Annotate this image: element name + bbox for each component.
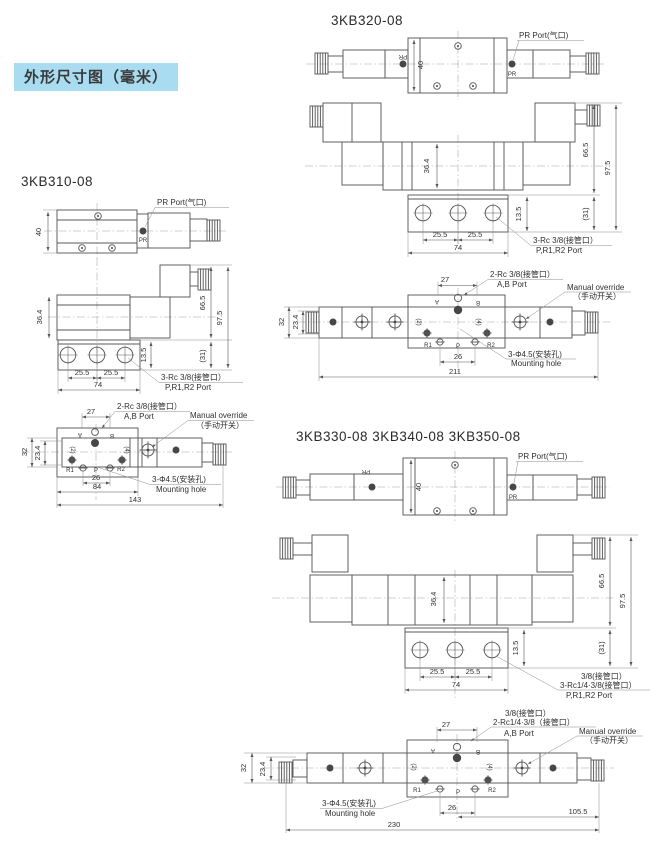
manual-override-symbol: [512, 314, 529, 331]
dim-31: (31): [597, 630, 610, 666]
dim-27: 27: [82, 407, 110, 417]
port-a-label: A: [431, 747, 435, 753]
dim-text: 26: [448, 803, 456, 812]
port-label: A,B Port: [124, 412, 155, 421]
dim-31: (31): [581, 197, 594, 230]
dim-40: 40: [34, 212, 48, 251]
port-p-label: P: [456, 790, 460, 796]
port-symbol: [470, 83, 477, 90]
dim-31: (31): [198, 342, 211, 368]
pr-port-callout: PR Port(气口): [513, 30, 584, 60]
dim-97-5: 97.5: [618, 537, 631, 666]
s320-bottom-view: A B (2) (4) R1 P R2 27 2-Rc 3/8(接管口） A,B…: [277, 269, 631, 381]
dim-32: 32: [20, 438, 32, 467]
port-label: P,R1,R2 Port: [165, 383, 212, 392]
pr-port-callout: PR Port(气口): [145, 197, 229, 227]
port-label: A,B Port: [504, 729, 535, 738]
dim-66-5: 66.5: [597, 537, 610, 626]
port-symbol: [357, 760, 374, 777]
port-label: 3/8(接管口）: [581, 671, 627, 681]
dim-text: 13.5: [139, 348, 148, 363]
pipe-port-symbol: [483, 641, 502, 660]
dim-text: 27: [442, 720, 450, 729]
mounting-label: Mounting hole: [511, 359, 562, 368]
port-p-label: P: [456, 344, 460, 350]
port-label: 2-Rc 3/8(接管口）: [117, 401, 182, 411]
pr-port-label: PR Port(气口): [518, 451, 568, 461]
port-r2-label: R2: [488, 788, 496, 794]
port-label: 3-Rc 3/8(接管口）: [161, 372, 226, 382]
dim-74: 74: [408, 243, 508, 253]
pipe-port-symbol: [59, 346, 78, 365]
mounting-hole-callout: 3-Φ4.5(安装孔) Mounting hole: [460, 329, 576, 368]
dim-13-5: 13.5: [511, 630, 524, 666]
s330-top-view: 40 PR PR PR Port(气口): [276, 451, 610, 522]
pipe-port-symbol: [414, 204, 433, 223]
pr-label: PR: [508, 72, 517, 78]
dim-40: 40: [411, 460, 423, 513]
port-a-symbol: [453, 754, 461, 762]
mounting-label: 3-Φ4.5(安装孔): [152, 474, 206, 484]
port-symbol: [109, 245, 116, 252]
dim-text: 32: [277, 318, 286, 326]
dim-text: 13.5: [511, 641, 520, 656]
drawing-page: 外形尺寸图（毫米） 3KB320-08 3KB310-08 3KB330-08 …: [0, 0, 667, 854]
pr-port-symbol: [140, 228, 147, 235]
dim-text: 74: [454, 243, 462, 252]
pipe-port-symbol: [116, 346, 135, 365]
port-symbol: [354, 314, 371, 331]
mounting-label: 3-Φ4.5(安装孔): [508, 349, 562, 359]
dim-text: 23.4: [33, 446, 42, 461]
port-symbol: [173, 447, 180, 454]
port-label: P,R1,R2 Port: [566, 691, 613, 700]
port-4-label: (4): [486, 763, 492, 770]
mounting-hole-symbol: [435, 339, 444, 345]
port-a-symbol: [454, 306, 462, 314]
manual-override-label: （手动开关）: [196, 420, 244, 430]
dim-text: 23.4: [291, 315, 300, 330]
pr-label: PR: [398, 53, 407, 59]
port-a-label: A: [78, 431, 82, 437]
manual-override-symbol: [514, 760, 531, 777]
port-symbol: [67, 455, 76, 464]
port-r1-label: R1: [66, 468, 74, 474]
port-label: P,R1,R2 Port: [536, 246, 583, 255]
port-label: 2-Rc 3/8(接管口）: [490, 269, 555, 279]
port-symbol: [117, 455, 126, 464]
prr-port-callout: 3-Rc 3/8(接管口） P,R1,R2 Port: [496, 217, 612, 255]
dim-text: 74: [94, 380, 102, 389]
manual-override-label: （手动开关）: [573, 291, 621, 301]
mounting-hole-callout: 3-Φ4.5(安装孔) Mounting hole: [320, 791, 437, 818]
dim-text: 25.5: [466, 667, 481, 676]
dim-23-4: 23.4: [33, 441, 45, 465]
pr-port-callout: PR Port(气口): [514, 451, 583, 483]
pr-port-label: PR Port(气口): [519, 30, 569, 40]
port-4-label: (4): [123, 446, 129, 453]
dim-25-5-pair: 25.5 25.5: [420, 667, 492, 677]
dim-text: 23.4: [258, 762, 267, 777]
pipe-port-symbol: [446, 641, 465, 660]
dim-32: 32: [277, 307, 289, 338]
s310-front-view: 36.4 13.5 66.5 (31) 97.5 25.5: [35, 258, 243, 394]
dim-text: 27: [87, 407, 95, 416]
dim-text: 40: [416, 61, 425, 69]
dim-text: 97.5: [603, 161, 612, 176]
dim-text: 13.5: [514, 207, 523, 222]
dim-74: 74: [405, 680, 508, 690]
ab-port-callout: 2-Rc 3/8(接管口） A,B Port: [102, 401, 190, 428]
dim-13-5: 13.5: [514, 197, 527, 231]
mounting-label: Mounting hole: [325, 809, 376, 818]
dim-66-5: 66.5: [198, 267, 211, 338]
dim-text: 27: [441, 275, 449, 284]
port-symbol: [434, 83, 441, 90]
dim-text: (31): [581, 207, 590, 221]
s310-top-view: 40 PR PR Port(气口): [34, 197, 229, 261]
dim-text: 66.5: [597, 574, 606, 589]
port-a-symbol: [91, 439, 99, 447]
mounting-label: Mounting hole: [156, 485, 207, 494]
dim-text: 105.5: [569, 807, 588, 816]
mounting-hole-symbol: [470, 339, 479, 345]
dim-text: 32: [20, 448, 29, 456]
dim-74: 74: [58, 380, 140, 390]
manual-override-label: Manual override: [579, 727, 637, 736]
dimension-drawing: 40 PR PR PR Port(气口): [0, 0, 667, 854]
dim-text: 143: [129, 495, 142, 504]
port-symbol: [327, 765, 334, 772]
dim-143: 143: [57, 495, 223, 505]
dim-text: (31): [597, 641, 606, 655]
dim-text: 36.4: [429, 592, 438, 607]
pr-port-symbol: [369, 484, 376, 491]
dim-text: 40: [414, 483, 423, 491]
port-symbol: [330, 319, 337, 326]
dim-32: 32: [239, 753, 252, 783]
dim-text: 211: [449, 367, 461, 376]
port-r2-label: R2: [487, 343, 495, 349]
dim-text: 25.5: [468, 230, 483, 239]
dim-105-5: 105.5: [458, 807, 599, 817]
pipe-port-symbol: [449, 204, 468, 223]
dim-text: 66.5: [198, 296, 207, 311]
port-2-label: (2): [415, 318, 421, 325]
dim-97-5: 97.5: [215, 267, 228, 368]
pr-label: PR: [361, 468, 370, 474]
dim-40: 40: [414, 40, 425, 91]
mounting-hole-symbol: [470, 786, 479, 792]
dim-text: (31): [198, 349, 207, 363]
port-symbol: [550, 765, 557, 772]
dim-text: 66.5: [581, 143, 590, 158]
dim-23-4: 23.4: [258, 757, 271, 780]
port-label: A,B Port: [497, 280, 528, 289]
dim-84: 84: [57, 482, 138, 492]
dim-97-5: 97.5: [603, 105, 616, 230]
dim-26: 26: [440, 352, 475, 362]
dim-27: 27: [437, 720, 477, 730]
port-symbol: [422, 328, 431, 337]
dim-23-4: 23.4: [291, 311, 303, 334]
port-label: 3/8(接管口）: [505, 708, 551, 718]
port-a-label: A: [435, 298, 439, 304]
port-b-label: B: [476, 748, 480, 754]
manual-override-callout: Manual override （手动开关）: [152, 411, 254, 447]
dim-text: 40: [34, 228, 43, 236]
port-symbol: [470, 508, 477, 515]
mounting-label: 3-Φ4.5(安装孔): [322, 798, 376, 808]
port-b-label: B: [476, 299, 480, 305]
dim-text: 26: [454, 352, 462, 361]
manual-override-label: （手动开关）: [585, 735, 633, 745]
dim-26: 26: [440, 803, 475, 813]
pipe-port-symbol: [411, 641, 430, 660]
port-4-label: (4): [475, 318, 481, 325]
mounting-hole-callout: 3-Φ4.5(安装孔) Mounting hole: [97, 467, 221, 494]
port-label: 3-Rc 3/8(接管口）: [533, 235, 598, 245]
port-symbol: [482, 328, 491, 337]
manual-override-label: Manual override: [190, 411, 248, 420]
manual-override-label: Manual override: [567, 283, 625, 292]
manual-override-callout: Manual override （手动开关）: [526, 283, 631, 319]
dim-36-4: 36.4: [422, 144, 437, 188]
pr-label: PR: [509, 495, 518, 501]
dim-text: 25.5: [430, 667, 445, 676]
pr-port-symbol: [510, 484, 517, 491]
dim-text: 32: [239, 764, 248, 772]
ab-port-callout: 2-Rc 3/8(接管口） A,B Port: [464, 269, 563, 295]
dim-text: 74: [452, 680, 460, 689]
s310-bottom-view: A B (2) (4) R1 P R2 27 2-Rc 3/8(接管口） A,B…: [20, 401, 254, 508]
dim-text: 36.4: [422, 159, 431, 174]
pr-label: PR: [139, 238, 148, 244]
pr-port-label: PR Port(气口): [157, 197, 207, 207]
dim-36-4: 36.4: [35, 297, 49, 338]
s330-front-view: 36.4 13.5 66.5 (31) 97.5 25.5: [272, 535, 650, 700]
prr-port-callout: 3/8(接管口） 3-Rc1/4·3/8(接管口） P,R1,R2 Port: [496, 656, 650, 700]
pr-port-symbol: [400, 61, 407, 68]
dim-text: 36.4: [35, 310, 44, 325]
port-r1-label: R1: [413, 788, 421, 794]
dim-text: 230: [388, 820, 401, 829]
port-b-label: B: [110, 432, 114, 438]
dim-36-4: 36.4: [429, 577, 444, 623]
dim-text: 97.5: [618, 594, 627, 609]
dim-text: 25.5: [433, 230, 448, 239]
dim-text: 25.5: [104, 368, 119, 377]
port-2-label: (2): [410, 763, 416, 770]
dim-text: 97.5: [215, 311, 224, 326]
s330-bottom-view: A B (2) (4) R1 P R2 27 3/8(接管口） 2-Rc1/4·…: [239, 708, 643, 833]
port-label: 2-Rc1/4·3/8（接管口）: [493, 717, 575, 727]
port-symbol: [79, 245, 86, 252]
port-r1-label: R1: [424, 343, 432, 349]
port-symbol: [434, 508, 441, 515]
dim-25-5-pair: 25.5 25.5: [68, 368, 125, 378]
mounting-hole-symbol: [78, 465, 87, 471]
dim-27: 27: [438, 275, 477, 286]
s320-front-view: 36.4 13.5 66.5 (31) 97.5: [305, 103, 622, 257]
port-2-label: (2): [69, 446, 75, 453]
port-r2-label: R2: [117, 467, 125, 473]
dim-211: 211: [319, 367, 598, 377]
port-b-symbol: [92, 429, 99, 436]
port-label: 3-Rc1/4·3/8(接管口）: [560, 680, 636, 690]
dim-230: 230: [286, 820, 599, 830]
pr-port-symbol: [509, 61, 516, 68]
port-symbol: [387, 314, 404, 331]
port-symbol: [547, 319, 554, 326]
dim-13-5: 13.5: [139, 342, 151, 368]
dim-text: 26: [92, 473, 100, 482]
dim-text: 25.5: [75, 368, 90, 377]
port-symbol: [95, 213, 102, 220]
s320-top-view: 40 PR PR PR Port(气口): [306, 30, 606, 100]
pipe-port-symbol: [88, 346, 107, 365]
dim-text: 84: [93, 482, 101, 491]
